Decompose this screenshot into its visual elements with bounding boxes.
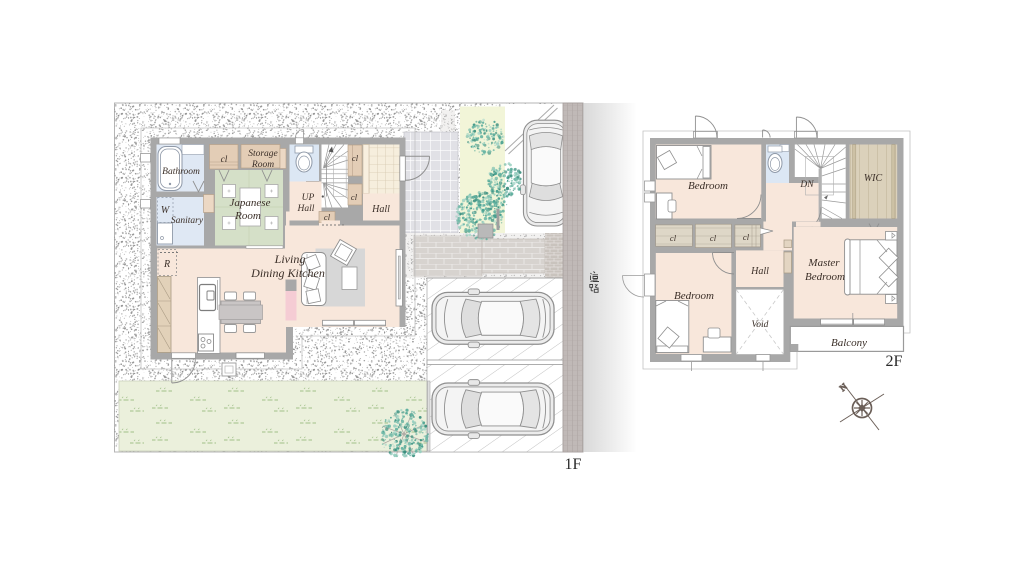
- svg-text:UP: UP: [302, 193, 315, 203]
- svg-text:Void: Void: [752, 320, 769, 330]
- svg-text:cl: cl: [351, 192, 358, 202]
- svg-text:Hall: Hall: [297, 204, 315, 214]
- svg-text:cl: cl: [324, 212, 331, 222]
- svg-text:Hall: Hall: [371, 204, 390, 215]
- svg-text:Living: Living: [274, 252, 306, 266]
- svg-text:2F: 2F: [886, 353, 903, 370]
- svg-text:Japanese: Japanese: [230, 197, 271, 209]
- svg-text:cl: cl: [221, 155, 228, 165]
- svg-text:Room: Room: [251, 160, 274, 170]
- svg-text:Room: Room: [234, 210, 261, 222]
- svg-text:R: R: [163, 259, 170, 270]
- svg-text:cl: cl: [670, 233, 677, 243]
- svg-text:Balcony: Balcony: [831, 337, 867, 349]
- svg-text:Bathroom: Bathroom: [162, 167, 200, 177]
- svg-text:cl: cl: [743, 232, 750, 242]
- svg-text:Hall: Hall: [750, 266, 769, 277]
- svg-text:Bedroom: Bedroom: [674, 290, 714, 302]
- svg-text:cl: cl: [352, 153, 359, 163]
- svg-text:WIC: WIC: [864, 173, 883, 184]
- svg-text:Master: Master: [807, 257, 840, 269]
- svg-text:Bedroom: Bedroom: [805, 271, 845, 283]
- svg-text:DN: DN: [799, 180, 814, 190]
- svg-text:cl: cl: [710, 233, 717, 243]
- svg-text:Storage: Storage: [248, 149, 278, 159]
- svg-text:Bedroom: Bedroom: [688, 180, 728, 192]
- svg-text:Dining Kitchen: Dining Kitchen: [250, 266, 325, 280]
- svg-text:1F: 1F: [565, 456, 582, 473]
- svg-text:Sanitary: Sanitary: [171, 216, 204, 226]
